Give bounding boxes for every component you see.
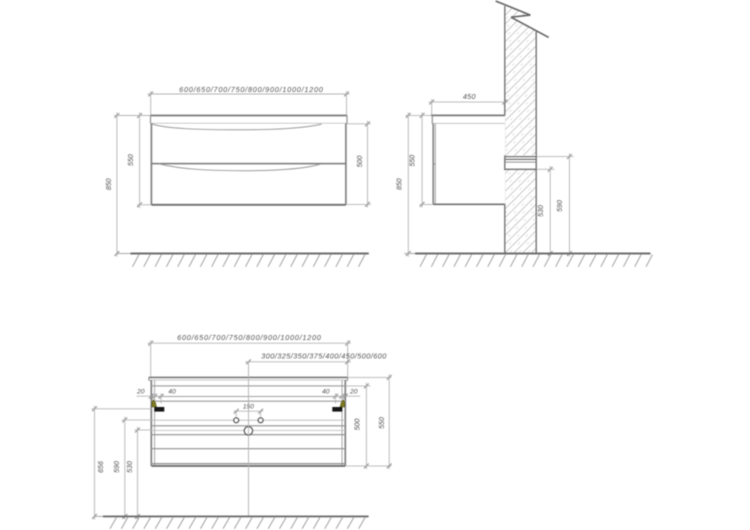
svg-text:850: 850 <box>106 178 113 190</box>
svg-text:500: 500 <box>357 156 364 168</box>
svg-text:850: 850 <box>396 178 403 190</box>
svg-text:530: 530 <box>538 205 545 217</box>
svg-text:300/325/350/375/400/450/500/60: 300/325/350/375/400/450/500/600 <box>261 352 387 361</box>
svg-text:40: 40 <box>322 388 330 395</box>
svg-text:450: 450 <box>463 92 476 101</box>
svg-text:600/650/700/750/800/900/1000/1: 600/650/700/750/800/900/1000/1200 <box>179 85 323 94</box>
svg-text:20: 20 <box>136 388 145 395</box>
svg-text:550: 550 <box>379 417 386 429</box>
svg-text:550: 550 <box>410 155 417 167</box>
svg-text:20: 20 <box>349 388 358 395</box>
svg-text:590: 590 <box>557 200 564 212</box>
svg-text:550: 550 <box>128 154 135 166</box>
svg-text:656: 656 <box>98 461 105 473</box>
svg-text:600/650/700/750/800/900/1000/1: 600/650/700/750/800/900/1000/1200 <box>177 333 321 342</box>
svg-text:40: 40 <box>168 388 176 395</box>
svg-text:530: 530 <box>127 461 134 473</box>
svg-text:500: 500 <box>354 419 361 431</box>
svg-text:590: 590 <box>114 461 121 473</box>
